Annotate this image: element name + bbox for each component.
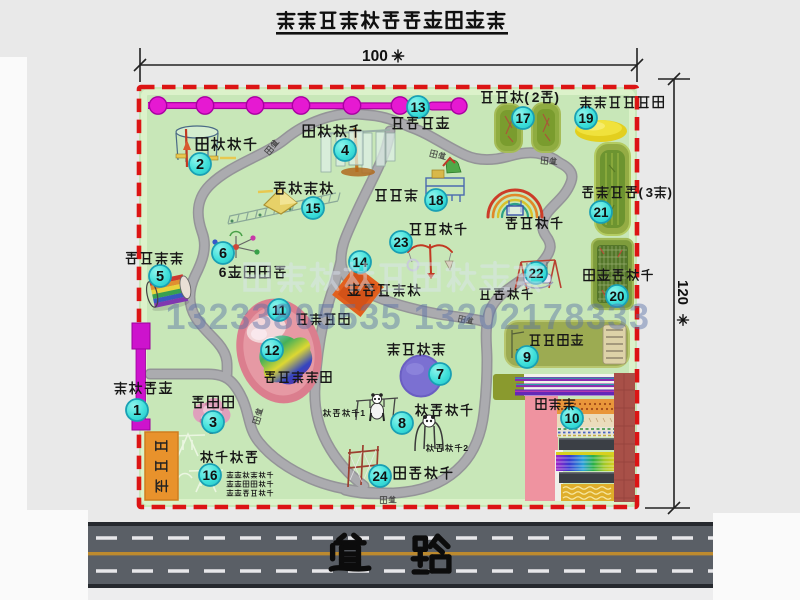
svg-text:8: 8	[398, 416, 406, 432]
svg-text:2: 2	[463, 443, 468, 453]
svg-text:13: 13	[410, 100, 426, 115]
svg-text:2: 2	[196, 157, 204, 173]
svg-text:120: 120	[674, 280, 691, 305]
svg-text:16: 16	[202, 468, 218, 483]
svg-text:1: 1	[133, 403, 141, 419]
svg-text:13233805535 13202178333: 13233805535 13202178333	[166, 296, 651, 337]
svg-text:18: 18	[428, 193, 444, 208]
svg-text:100: 100	[362, 48, 388, 65]
svg-text:10: 10	[564, 411, 579, 426]
svg-text:23: 23	[393, 235, 409, 250]
svg-text:): )	[668, 185, 672, 200]
svg-text:5: 5	[156, 269, 164, 285]
svg-text:17: 17	[515, 111, 530, 126]
svg-text:15: 15	[305, 201, 321, 216]
svg-text:21: 21	[593, 205, 609, 220]
svg-text:19: 19	[578, 111, 593, 126]
svg-text:1: 1	[360, 408, 365, 418]
svg-text:(2: (2	[524, 90, 539, 105]
svg-text:6: 6	[219, 246, 227, 262]
svg-text:9: 9	[523, 350, 531, 366]
svg-text:6: 6	[219, 265, 227, 280]
svg-text:24: 24	[372, 469, 388, 484]
svg-text:3: 3	[209, 415, 217, 431]
svg-text:7: 7	[436, 367, 444, 383]
svg-text:(3: (3	[639, 185, 654, 200]
svg-text:): )	[554, 90, 559, 105]
svg-text:4: 4	[341, 143, 349, 159]
svg-text:12: 12	[264, 343, 279, 358]
